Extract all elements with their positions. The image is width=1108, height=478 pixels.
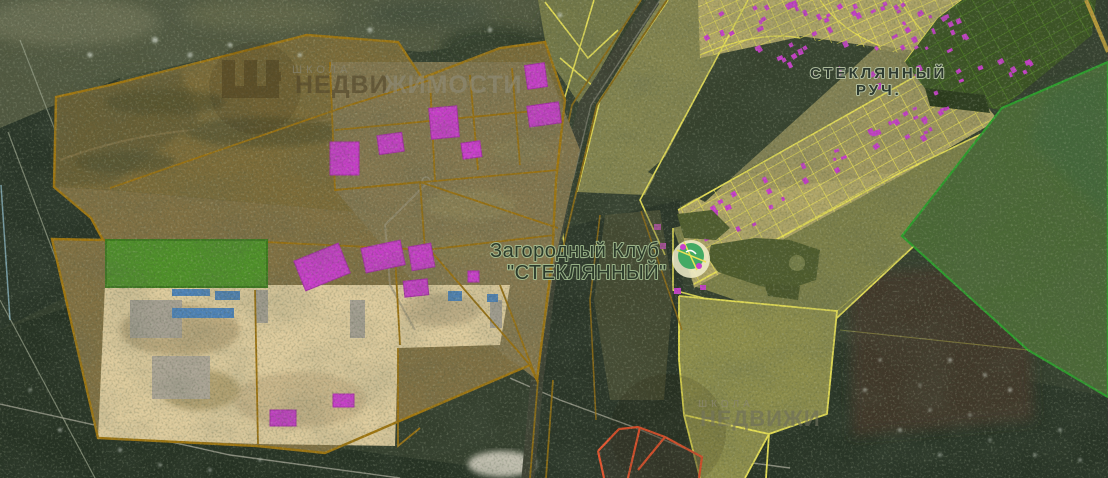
svg-text:ЖИМОСТИ: ЖИМОСТИ xyxy=(383,71,523,99)
svg-text:Загородный Клуб: Загородный Клуб xyxy=(490,240,659,262)
svg-text:РУЧ.: РУЧ. xyxy=(856,82,902,99)
svg-text:СТЕКЛЯННЫЙ: СТЕКЛЯННЫЙ xyxy=(810,64,947,82)
svg-text:НЕДВИ: НЕДВИ xyxy=(295,71,389,99)
svg-text:НЕДВИЖИ: НЕДВИЖИ xyxy=(700,406,821,431)
svg-text:"СТЕКЛЯННЫЙ": "СТЕКЛЯННЫЙ" xyxy=(507,260,667,284)
